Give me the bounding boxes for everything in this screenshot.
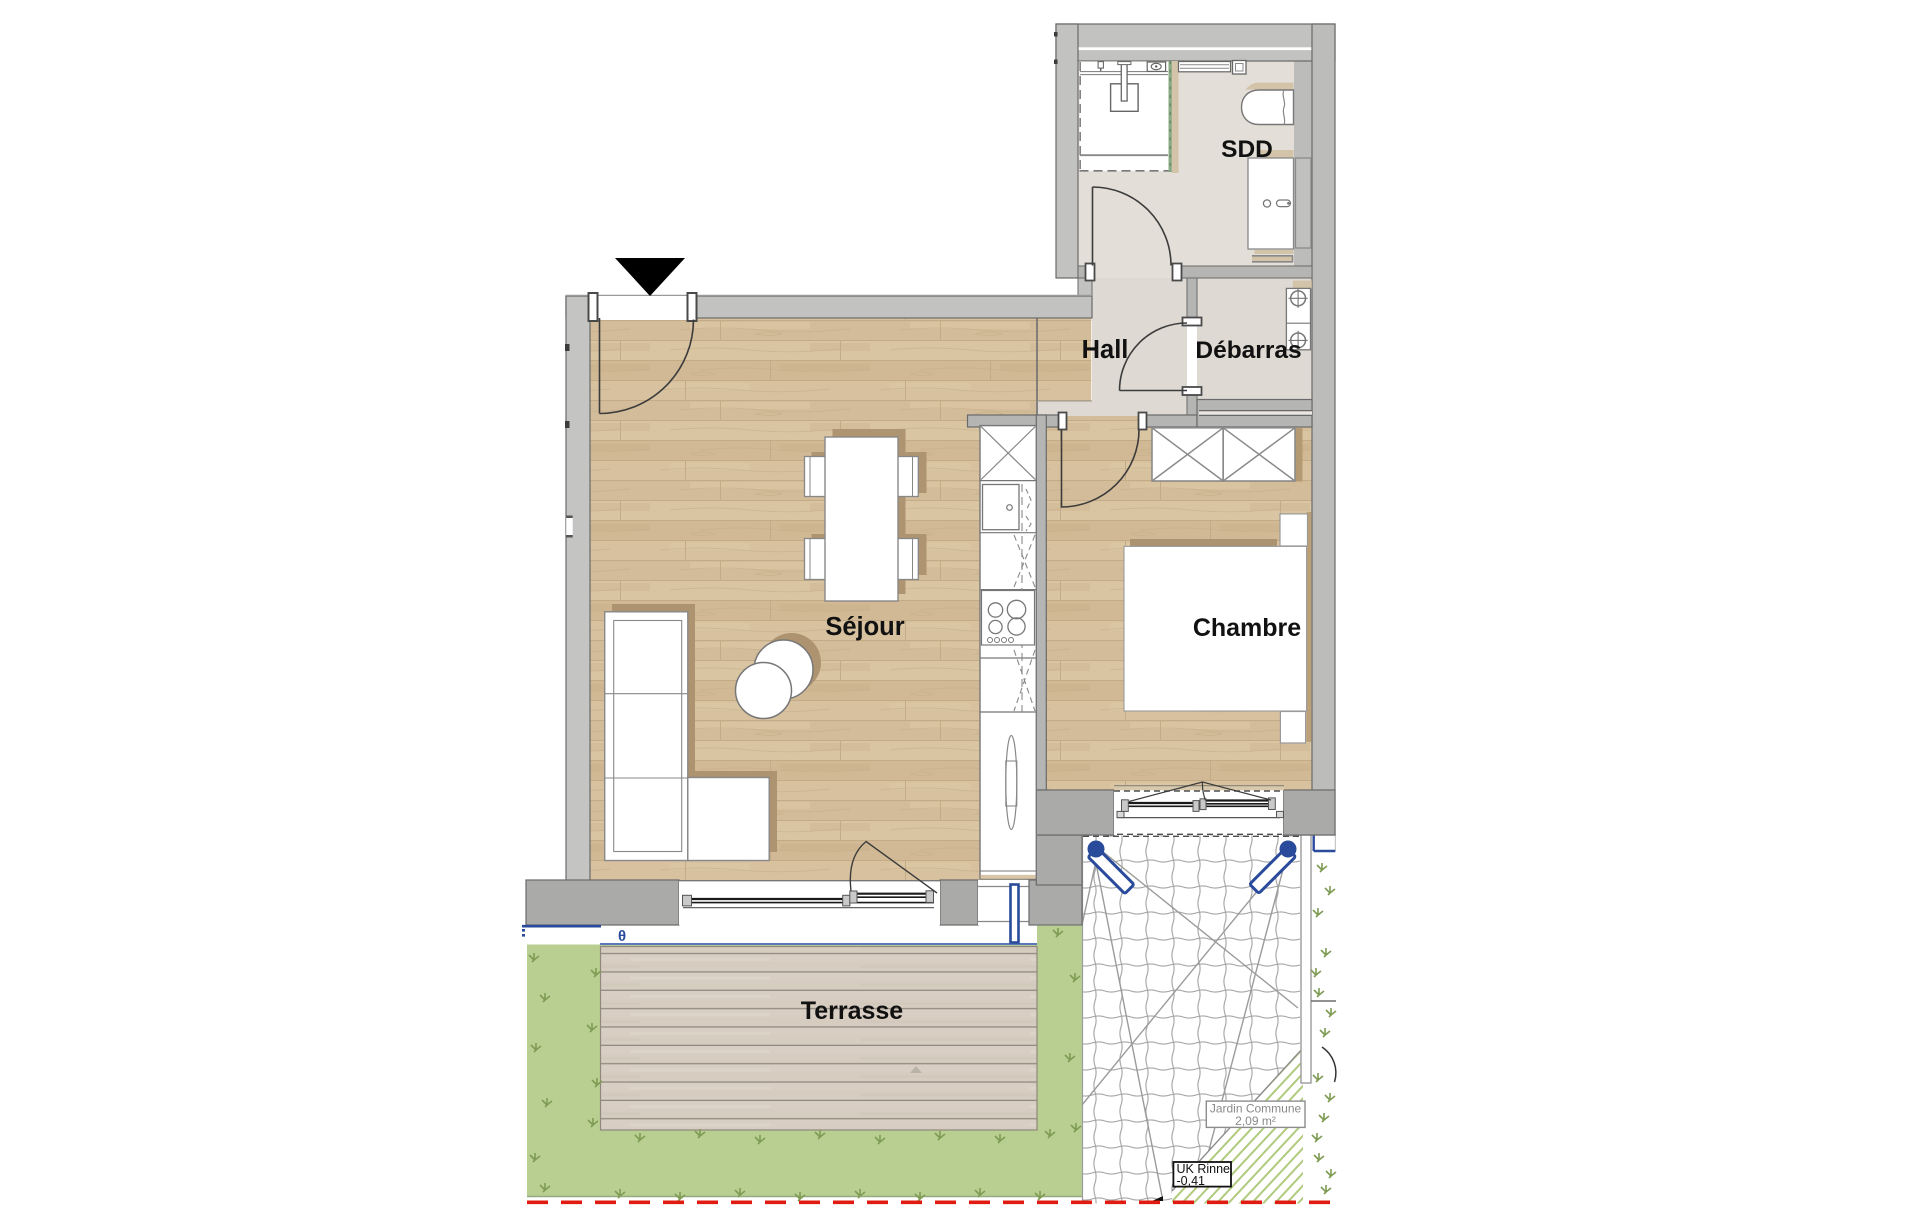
svg-text:Chambre: Chambre xyxy=(1193,614,1301,642)
svg-text:θ: θ xyxy=(618,928,626,945)
svg-text:Débarras: Débarras xyxy=(1195,337,1301,364)
svg-text:SDD: SDD xyxy=(1221,136,1273,163)
svg-text:2,09 m²: 2,09 m² xyxy=(1235,1114,1276,1128)
svg-text:-0,41: -0,41 xyxy=(1177,1174,1206,1188)
svg-text:Terrasse: Terrasse xyxy=(801,997,903,1025)
svg-text:Hall: Hall xyxy=(1082,336,1129,364)
svg-text:Séjour: Séjour xyxy=(825,613,904,641)
